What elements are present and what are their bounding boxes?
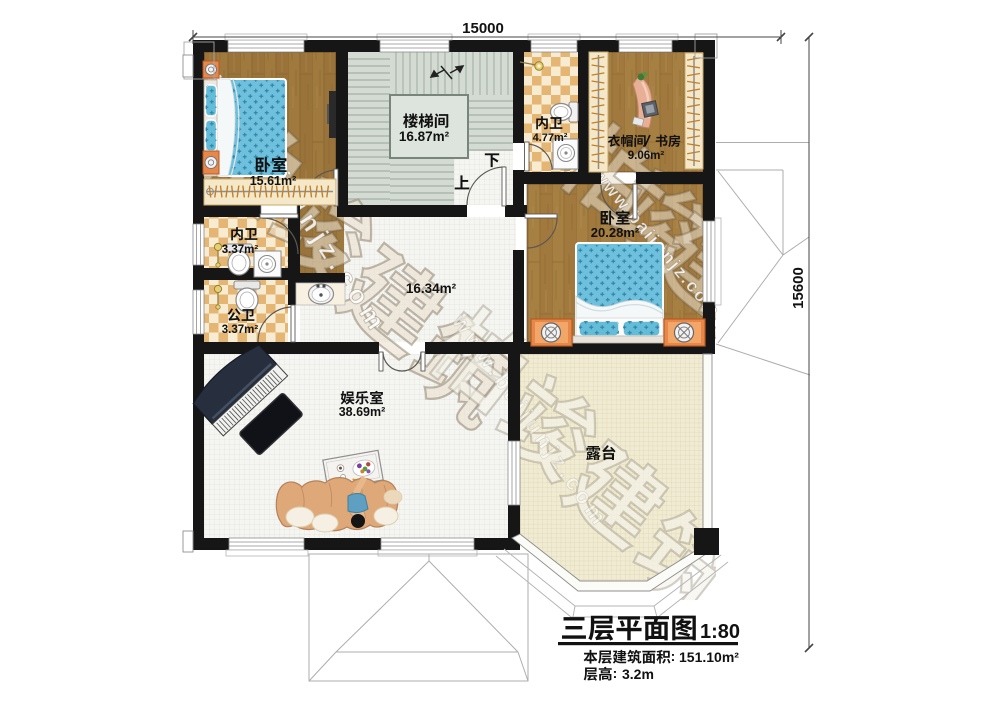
- svg-text::: :: [671, 648, 676, 664]
- svg-text:16.87m²: 16.87m²: [399, 129, 450, 144]
- svg-text:3.37m²: 3.37m²: [222, 324, 259, 336]
- svg-text:16.34m²: 16.34m²: [406, 281, 457, 296]
- svg-text:20.28m²: 20.28m²: [591, 225, 640, 240]
- svg-text:9.06m²: 9.06m²: [628, 150, 665, 162]
- svg-text:1:80: 1:80: [700, 621, 740, 643]
- svg-text::: :: [613, 665, 618, 681]
- svg-text:38.69m²: 38.69m²: [339, 405, 386, 419]
- svg-text:151.10m²: 151.10m²: [679, 649, 739, 665]
- svg-text:15000: 15000: [462, 20, 504, 37]
- svg-text:15600: 15600: [790, 267, 807, 309]
- svg-text:15.61m²: 15.61m²: [250, 174, 297, 188]
- svg-text:3.37m²: 3.37m²: [222, 244, 259, 256]
- svg-text:4.77m²: 4.77m²: [533, 132, 568, 144]
- svg-text:3.2m: 3.2m: [622, 666, 654, 682]
